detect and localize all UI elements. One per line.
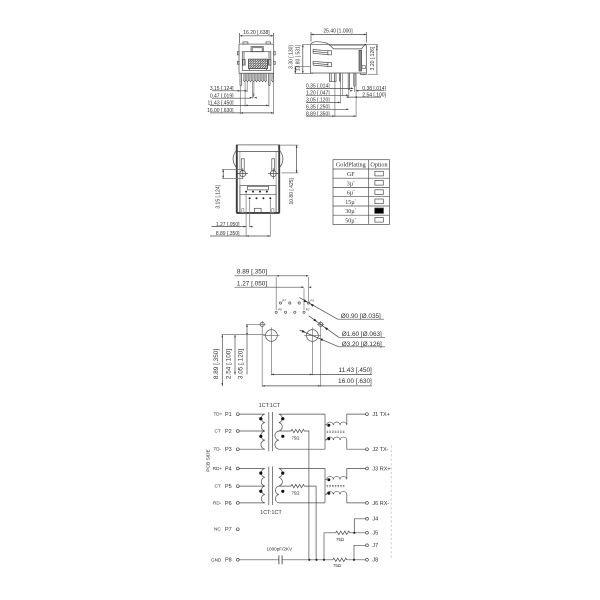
svg-text:J3 RX+: J3 RX+ <box>372 466 390 472</box>
svg-text:3.05 [.120]: 3.05 [.120] <box>306 98 330 104</box>
svg-text:75Ω: 75Ω <box>336 537 345 542</box>
svg-text:3.05 [.120]: 3.05 [.120] <box>238 349 245 379</box>
svg-text:CT: CT <box>215 484 221 489</box>
svg-text:16.20 [.638]: 16.20 [.638] <box>243 30 270 36</box>
svg-text:1.27 [.050]: 1.27 [.050] <box>237 280 267 287</box>
svg-text:8.89 [.350]: 8.89 [.350] <box>213 349 220 379</box>
svg-text:6µ″: 6µ″ <box>347 189 355 197</box>
svg-text:6.35 [.250]: 6.35 [.250] <box>306 105 330 111</box>
svg-text:Option: Option <box>370 161 387 168</box>
svg-text:75Ω: 75Ω <box>333 563 342 568</box>
svg-text:J5: J5 <box>372 531 378 537</box>
svg-text:3µ″: 3µ″ <box>347 180 355 188</box>
svg-text:P8: P8 <box>225 558 232 564</box>
svg-text:3.20 [.126]: 3.20 [.126] <box>370 46 376 70</box>
svg-text:P2: P2 <box>306 308 310 312</box>
svg-text:P1: P1 <box>225 412 232 418</box>
svg-text:75Ω: 75Ω <box>292 490 301 495</box>
svg-text:NC: NC <box>214 527 221 532</box>
svg-text:P4: P4 <box>225 466 232 472</box>
svg-text:75Ω: 75Ω <box>292 435 301 440</box>
svg-text:GND: GND <box>211 557 222 562</box>
svg-text:1000pF/2KV: 1000pF/2KV <box>267 546 293 551</box>
svg-text:P2: P2 <box>225 429 232 435</box>
svg-text:J6 RX-: J6 RX- <box>372 501 389 507</box>
svg-text:GF: GF <box>347 172 355 178</box>
svg-text:8.89 [.350]: 8.89 [.350] <box>237 269 267 276</box>
svg-text:3.30 [.130]: 3.30 [.130] <box>288 45 294 69</box>
svg-text:1.20 [.047]: 1.20 [.047] <box>306 91 330 97</box>
svg-text:16.00 [.630]: 16.00 [.630] <box>338 378 372 385</box>
svg-text:1CT:1CT: 1CT:1CT <box>259 403 281 409</box>
svg-text:J2 TX-: J2 TX- <box>372 447 388 453</box>
svg-text:P8: P8 <box>278 307 282 311</box>
svg-text:0.35 [.014]: 0.35 [.014] <box>306 84 330 90</box>
svg-text:RD-: RD- <box>213 500 222 505</box>
svg-text:TD-: TD- <box>214 447 222 452</box>
svg-text:J1 TX+: J1 TX+ <box>372 412 389 418</box>
svg-text:3.15 [.124]: 3.15 [.124] <box>216 184 222 208</box>
svg-text:8.89 [.350]: 8.89 [.350] <box>306 111 330 117</box>
svg-text:CT: CT <box>215 429 221 434</box>
svg-text:1CT:1CT: 1CT:1CT <box>260 510 282 516</box>
svg-text:30µ″: 30µ″ <box>345 208 356 216</box>
svg-text:P7: P7 <box>225 527 232 533</box>
svg-text:GoldPlating: GoldPlating <box>336 162 366 169</box>
svg-text:13.80 [.531]: 13.80 [.531] <box>295 44 301 71</box>
svg-text:P1: P1 <box>310 298 314 302</box>
svg-text:2.54 [.100]: 2.54 [.100] <box>226 349 233 379</box>
svg-text:TD+: TD+ <box>214 412 223 417</box>
svg-text:P3: P3 <box>225 447 232 453</box>
svg-text:J4: J4 <box>372 517 378 523</box>
svg-text:P7: P7 <box>282 298 286 302</box>
svg-text:P6: P6 <box>225 501 232 507</box>
svg-text:RD+: RD+ <box>213 466 223 471</box>
svg-text:P5: P5 <box>225 484 232 490</box>
svg-text:2.54 [.100]: 2.54 [.100] <box>362 92 386 98</box>
svg-text:10.80 [.425]: 10.80 [.425] <box>289 177 295 204</box>
svg-text:J8: J8 <box>372 558 378 564</box>
svg-text:25.40 [1.000]: 25.40 [1.000] <box>323 29 353 35</box>
svg-text:11.43 [.450]: 11.43 [.450] <box>339 367 373 374</box>
svg-text:50µ″: 50µ″ <box>345 217 356 225</box>
svg-text:J7: J7 <box>372 543 378 549</box>
svg-text:PCB SIDE: PCB SIDE <box>206 449 212 471</box>
svg-text:15µ″: 15µ″ <box>345 198 356 206</box>
